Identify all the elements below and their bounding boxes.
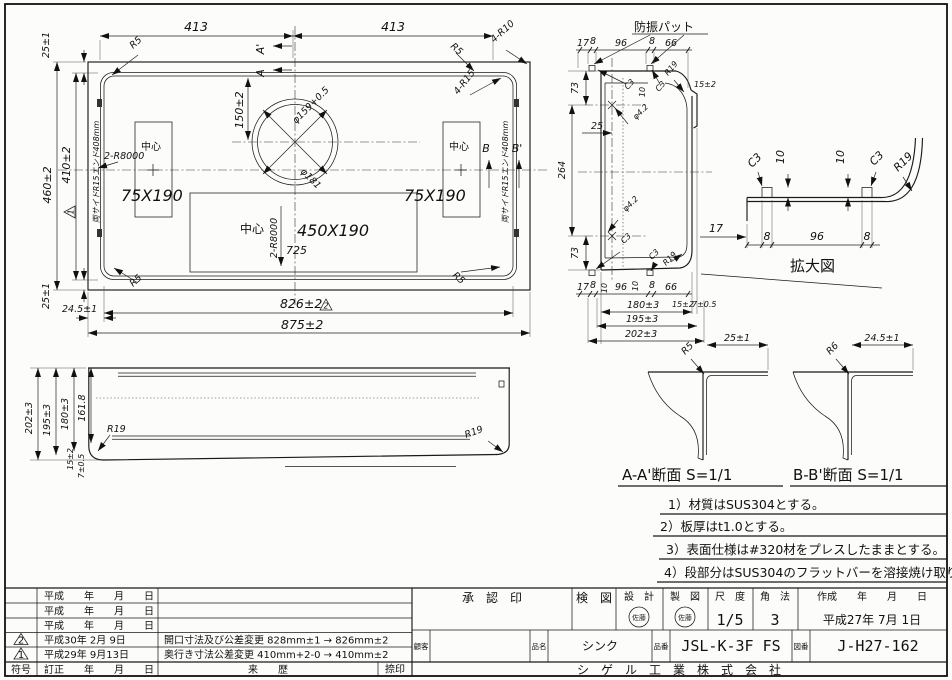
rev-row-3-date: 平成30年 2月 9日 xyxy=(44,634,126,647)
rev-footer-seal: 捺印 xyxy=(385,663,405,676)
dim-96-enl: 96 xyxy=(810,230,824,243)
dim-15-top-callout: 15±2 xyxy=(694,80,716,89)
center-mark-mid: 中心 xyxy=(240,221,264,236)
r19-top-callout: R19 xyxy=(663,59,680,77)
section-b-label: B xyxy=(482,142,490,155)
chain-66-bot: 66 xyxy=(665,282,677,293)
dim-10-enl-left: 10 xyxy=(774,150,787,164)
approval-label: 承 認 印 xyxy=(462,590,522,605)
dim-413-left: 413 xyxy=(184,19,208,34)
dim-180-side: 180±3 xyxy=(60,398,71,430)
c3-enl-right: C3 xyxy=(867,149,887,169)
r10-callout: 4-R10 xyxy=(489,18,517,45)
dim-826-875: 826±2 2 875±2 24.5±1 xyxy=(62,286,530,337)
chain-8a-bot: 8 xyxy=(590,280,596,291)
scale-label: 尺 度 xyxy=(715,590,745,603)
rev-footer-date: 訂正 年 月 日 xyxy=(44,663,154,676)
dim-410-label: 410±2 xyxy=(60,146,73,183)
scale-value: 1/5 xyxy=(716,611,743,629)
rev-footer-sym: 符号 xyxy=(11,663,31,676)
design-label: 設 計 xyxy=(624,590,654,603)
dim-73-top: 73 xyxy=(570,82,581,94)
section-b-prime-label: B' xyxy=(512,142,523,155)
approval-row: 承 認 印 検 図 設 計 佐藤 製 図 佐藤 尺 度 1/5 角 法 3 作成… xyxy=(462,590,927,629)
dim-264: 264 xyxy=(557,161,568,179)
r5-detail-a: R5 xyxy=(679,340,696,357)
part-number: JSL-K-3F FS xyxy=(681,637,780,655)
plan-view: φ159+0.5 φ181 150±2 413 413 A' A B B' R5… xyxy=(41,18,547,337)
chain-17-top: 17 xyxy=(577,38,589,49)
dim-413: 413 413 xyxy=(100,19,493,60)
dim-8-enl-right: 8 xyxy=(864,230,871,243)
plan-centerlines xyxy=(58,26,547,305)
dim-10-enl-right: 10 xyxy=(834,150,847,164)
part-label: 品番 xyxy=(654,641,669,651)
chain-96-top: 96 xyxy=(615,38,627,49)
rev-row-4-date: 平成29年 9月13日 xyxy=(44,648,129,661)
detail-a-title: A-A'断面 S=1/1 xyxy=(622,466,732,484)
dim-15-sec-bot: 15±2 xyxy=(672,300,694,309)
side-dims: 202±3 195±3 180±3 161.8 15±2 7±0.5 R19 R… xyxy=(24,368,503,478)
dim-10-bot-2: 10 xyxy=(631,281,640,291)
c3-top-1: C3 xyxy=(623,77,637,91)
pocket-right-label: 75X190 xyxy=(404,186,466,205)
dim-15-side: 15±2 xyxy=(66,448,75,470)
dim-202-side: 202±3 xyxy=(24,402,35,434)
note-3: 3）表面仕様は#320材をプレスしたままとする。 xyxy=(666,542,945,557)
detail-b-title: B-B'断面 S=1/1 xyxy=(793,466,904,484)
rev-footer-history: 来 歴 xyxy=(248,664,288,676)
dim-195-side: 195±3 xyxy=(42,404,53,436)
dim-10-top-1: 10 xyxy=(638,87,647,97)
section-left-dims: 73 264 73 xyxy=(557,71,600,270)
r5-bottom-left: R5 xyxy=(128,273,145,290)
dim-725-label: 725 xyxy=(286,244,307,257)
rev-row-4-sym: 1 xyxy=(18,650,24,661)
drawing-label: 図番 xyxy=(794,641,809,651)
chain-66-top: 66 xyxy=(665,38,677,49)
drawing-sheet: φ159+0.5 φ181 150±2 413 413 A' A B B' R5… xyxy=(0,0,952,680)
dim-875-label: 875±2 xyxy=(281,317,323,332)
dim-195-sec: 195±3 xyxy=(626,314,658,325)
rev-row-1-date: 平成 年 月 日 xyxy=(44,605,154,618)
dim-150: 150±2 xyxy=(233,78,248,140)
draft-seal: 佐藤 xyxy=(678,613,692,622)
dim-17-enl: 17 xyxy=(709,222,723,235)
note-1: 1）材質はSUS304とする。 xyxy=(668,497,824,512)
r6-detail-b: R6 xyxy=(824,340,841,357)
c3-bot-2: C3 xyxy=(647,247,661,261)
c3-enl-left: C3 xyxy=(745,151,765,171)
product-row: 顧客 品名 シンク 品番 JSL-K-3F FS 図番 J-H27-162 xyxy=(414,637,919,655)
edge-note-left: 両サイドR15エンド408mm xyxy=(92,120,101,223)
section-a-label: A xyxy=(254,69,267,78)
check-label: 検 図 xyxy=(576,591,612,605)
enlarged-view: C3 10 10 C3 R19 17 8 96 8 拡大図 xyxy=(700,138,923,288)
r19-side-right: R19 xyxy=(463,424,484,441)
chain-17-bot: 17 xyxy=(577,282,589,293)
detail-a: R5 25±1 A-A'断面 S=1/1 xyxy=(618,333,783,486)
chain-8a-top: 8 xyxy=(590,36,596,47)
product-label: 品名 xyxy=(532,641,547,651)
chain-96-bot: 96 xyxy=(615,282,627,293)
created-date: 平成27年 7月 1日 xyxy=(823,613,921,627)
section-top-callouts: C3 10 C3 R19 15±2 xyxy=(598,59,716,97)
enlarged-dims: 17 8 96 8 xyxy=(700,200,880,248)
r5-top-right: R5 xyxy=(448,41,465,58)
rev-row-4-desc: 奥行き寸法公差変更 410mm+2-0 → 410mm±2 xyxy=(164,648,389,661)
corner-radius-callouts: R5 R5 R5 R5 4-R10 4-R15 xyxy=(112,18,527,289)
side-view: 202±3 195±3 180±3 161.8 15±2 7±0.5 R19 R… xyxy=(24,368,510,478)
dia-42-bottom: φ4.2 xyxy=(621,194,640,213)
dim-24-5-label: 24.5±1 xyxy=(62,304,97,315)
cad-drawing-svg: φ159+0.5 φ181 150±2 413 413 A' A B B' R5… xyxy=(0,0,952,680)
dim-826-label: 826±2 xyxy=(280,296,322,311)
r8000-left: 2-R8000 xyxy=(104,151,144,162)
notes: 1）材質はSUS304とする。 2）板厚はt1.0とする。 3）表面仕様は#32… xyxy=(653,497,952,582)
note-4: 4）段部分はSUS304のフラットバーを溶接焼け取り仕上げとする。 xyxy=(664,565,952,580)
c3-bot-1: C3 xyxy=(619,231,633,245)
r19-side-left: R19 xyxy=(107,424,126,435)
projection-value: 3 xyxy=(770,611,779,629)
c3-top-2: C3 xyxy=(654,79,668,93)
side-outline xyxy=(88,368,510,467)
dim-left-stack: 460±2 410±2 1 25±1 25±1 xyxy=(41,32,98,309)
chain-8b-top: 8 xyxy=(649,36,655,47)
dim-7-sec-bot: 7±0.5 xyxy=(692,300,717,309)
dim-10-bot-1: 10 xyxy=(600,283,609,293)
section-inner-dims: 25 φ4.2 φ4.2 xyxy=(582,102,650,232)
pocket-center: 中心 450X190 2-R8000 725 xyxy=(190,193,417,272)
dim-413-right: 413 xyxy=(381,19,405,34)
dim-8-enl-left: 8 xyxy=(764,230,771,243)
rev-mark-1: 1 xyxy=(67,209,76,214)
pocket-right: 中心 75X190 xyxy=(404,122,480,217)
section-view: 防振パット 17 8 96 8 66 C3 10 C3 R19 15±2 25 … xyxy=(557,19,717,344)
created-label: 作成 年 月 日 xyxy=(817,590,927,603)
dim-24-5-detail-b: 24.5±1 xyxy=(864,333,899,344)
rev-mark-2: 2 xyxy=(323,302,328,311)
dim-25-top-label: 25±1 xyxy=(41,32,52,58)
dim-25-bottom-label: 25±1 xyxy=(41,283,52,309)
rev-row-0-date: 平成 年 月 日 xyxy=(44,590,154,603)
section-a-prime-label: A' xyxy=(254,44,267,56)
detail-b: R6 24.5±1 B-B'断面 S=1/1 xyxy=(790,333,947,486)
drawing-number: J-H27-162 xyxy=(837,637,918,655)
pocket-left: 中心 2-R8000 75X190 xyxy=(98,122,183,217)
title-block: 平成 年 月 日 平成 年 月 日 平成 年 月 日 2 平成30年 2月 9日… xyxy=(5,588,947,677)
rev-row-2-date: 平成 年 月 日 xyxy=(44,619,154,632)
r5-bottom-right: R5 xyxy=(450,270,467,287)
center-mark-right: 中心 xyxy=(449,140,469,153)
note-2: 2）板厚はt1.0とする。 xyxy=(660,519,792,534)
pocket-left-label: 75X190 xyxy=(121,186,183,205)
rev-row-3-sym: 2 xyxy=(18,636,24,647)
company-name: シ ゲ ル 工 業 株 式 会 社 xyxy=(577,662,781,677)
chain-8b-bot: 8 xyxy=(649,280,655,291)
draft-label: 製 図 xyxy=(670,590,700,603)
dim-202-sec: 202±3 xyxy=(625,329,657,340)
r5-top-left: R5 xyxy=(128,35,145,52)
r8000-center: 2-R8000 xyxy=(269,218,280,258)
dim-25-detail-a: 25±1 xyxy=(724,333,750,344)
enlarged-title: 拡大図 xyxy=(790,257,835,275)
customer-label: 顧客 xyxy=(414,641,429,651)
dim-7-side: 7±0.5 xyxy=(77,454,86,479)
pad-label: 防振パット xyxy=(634,19,694,34)
pocket-center-label: 450X190 xyxy=(297,221,369,240)
product-name: シンク xyxy=(582,639,618,653)
dim-460-label: 460±2 xyxy=(41,166,54,203)
dim-161-side: 161.8 xyxy=(77,394,88,421)
dim-180-sec: 180±3 xyxy=(627,300,659,311)
dim-73-bottom: 73 xyxy=(570,247,581,259)
dim-25-label: 25 xyxy=(591,121,603,132)
r19-enl: R19 xyxy=(891,150,915,174)
dim-150-label: 150±2 xyxy=(233,91,246,128)
design-seal: 佐藤 xyxy=(632,613,646,622)
rev-row-3-desc: 開口寸法及び公差変更 828mm±1 → 826mm±2 xyxy=(164,634,389,647)
edge-note-right: 両サイドR15エンド408mm xyxy=(501,120,510,223)
projection-label: 角 法 xyxy=(760,590,790,603)
